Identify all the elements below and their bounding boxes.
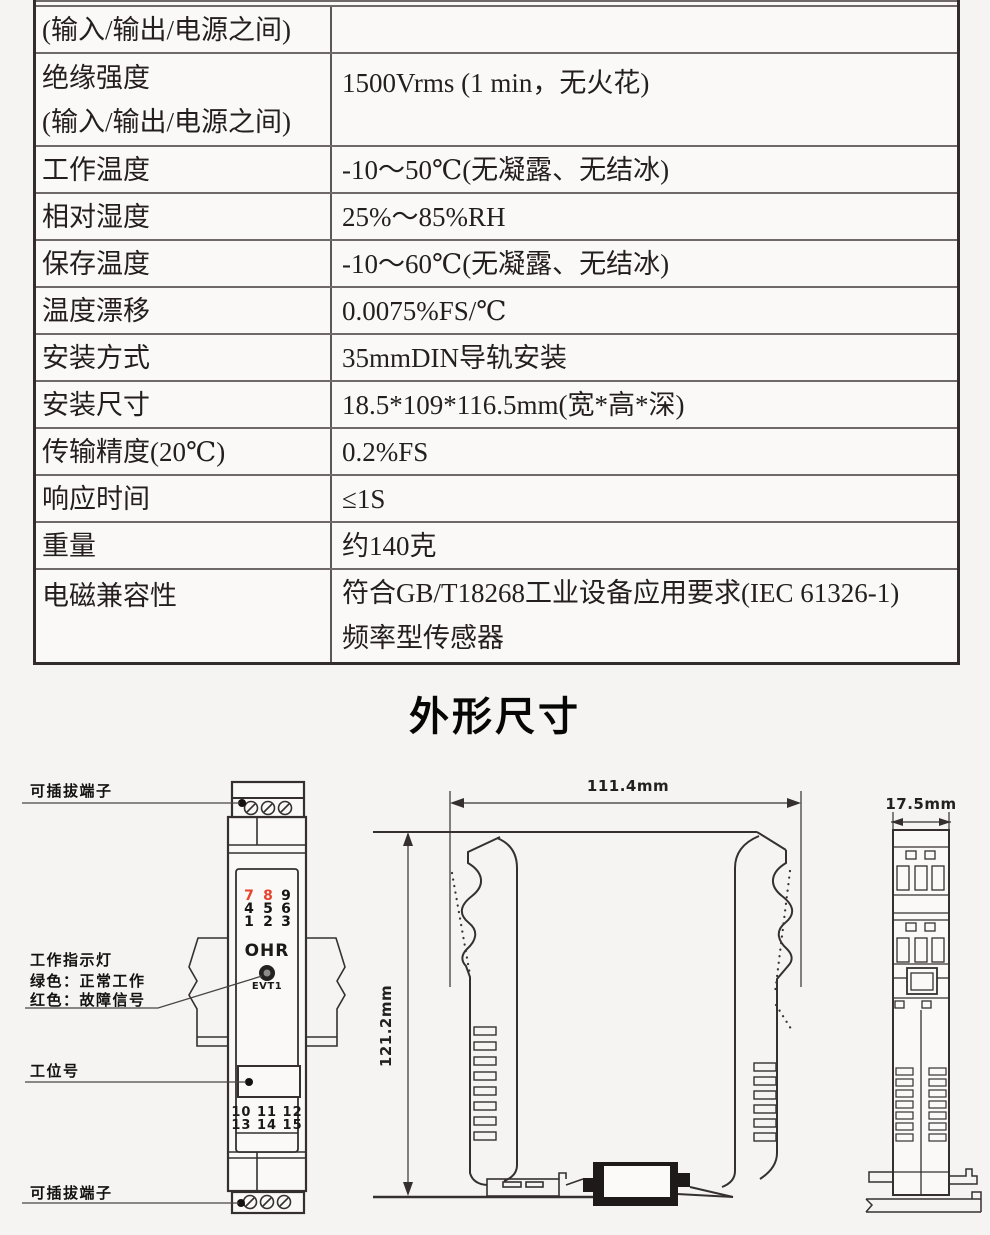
table-row: 传输精度(20℃) 0.2%FS	[36, 427, 957, 474]
spec-value: 约140克	[342, 525, 957, 567]
table-row: 响应时间 ≤1S	[36, 474, 957, 521]
dimension-height-label: 121.2mm	[377, 985, 395, 1067]
bottom-terminal-block	[232, 1192, 304, 1213]
spec-label: 响应时间	[42, 479, 330, 519]
spec-value: ≤1S	[342, 478, 957, 520]
spec-value: 18.5*109*116.5mm(宽*高*深)	[342, 384, 957, 426]
spec-label: 绝缘强度	[42, 56, 330, 100]
terminal-digit: 2	[263, 914, 273, 930]
callout-indicator-title: 工作指示灯	[30, 951, 113, 969]
front-view: 7 8 9 4 5 6 1 2 3 OHR EVT1 10	[22, 782, 345, 1213]
table-row: 绝缘强度 (输入/输出/电源之间) 1500Vrms (1 min，无火花)	[36, 52, 957, 145]
spec-label: (输入/输出/电源之间)	[42, 10, 330, 50]
din-clip	[583, 1162, 690, 1206]
dimension-width: 111.4mm	[450, 777, 801, 987]
callout-station-label: 工位号	[30, 1062, 80, 1080]
table-row: 温度漂移 0.0075%FS/℃	[36, 286, 957, 333]
dimension-width-label: 111.4mm	[587, 777, 669, 795]
table-row: 安装方式 35mmDIN导轨安装	[36, 333, 957, 380]
spec-label: 相对湿度	[42, 197, 330, 237]
spec-label: 温度漂移	[42, 291, 330, 331]
outline-dimension-drawing: 7 8 9 4 5 6 1 2 3 OHR EVT1 10	[0, 765, 990, 1235]
table-row: 电磁兼容性 符合GB/T18268工业设备应用要求(IEC 61326-1) 频…	[36, 568, 957, 662]
mounting-foot	[487, 1173, 583, 1196]
spec-sheet-page: (输入/输出/电源之间) 绝缘强度 (输入/输出/电源之间) 1500Vrms …	[0, 0, 990, 1235]
spec-label: 安装尺寸	[42, 385, 330, 425]
spec-value: 1500Vrms (1 min，无火花)	[342, 62, 957, 104]
spec-value: 25%～85%RH	[342, 196, 957, 238]
spec-label: 安装方式	[42, 338, 330, 378]
station-number-box	[238, 1066, 300, 1097]
table-row: 相对湿度 25%～85%RH	[36, 192, 957, 239]
terminal-numbers-row2: 13 14 15	[231, 1118, 302, 1133]
table-row: (输入/输出/电源之间)	[36, 5, 957, 52]
spec-value: 0.2%FS	[342, 431, 957, 473]
table-row: 安装尺寸 18.5*109*116.5mm(宽*高*深)	[36, 380, 957, 427]
vent-slots-left	[474, 1027, 496, 1140]
led-label: EVT1	[252, 981, 282, 992]
callout-indicator-green: 绿色：正常工作	[30, 972, 146, 990]
spec-value: 0.0075%FS/℃	[342, 290, 957, 332]
status-led	[259, 965, 275, 981]
vent-slots-right	[754, 1063, 776, 1141]
dimension-height: 121.2mm	[377, 832, 413, 1196]
terminal-digit: 1	[244, 914, 254, 930]
spec-label: 电磁兼容性	[42, 576, 330, 616]
callout-terminal-bottom: 可插拔端子	[30, 1184, 113, 1202]
table-row: 保存温度 -10～60℃(无凝露、无结冰)	[36, 239, 957, 286]
spec-value: -10～60℃(无凝露、无结冰)	[342, 243, 957, 285]
dimension-depth: 17.5mm	[885, 795, 956, 829]
spec-label: 重量	[42, 526, 330, 566]
spec-value: -10～50℃(无凝露、无结冰)	[342, 149, 957, 191]
spec-label: 传输精度(20℃)	[42, 432, 330, 472]
spec-value: 符合GB/T18268工业设备应用要求(IEC 61326-1)	[342, 571, 957, 616]
terminal-screws	[244, 1196, 291, 1209]
side-view: 111.4mm 121.2mm	[373, 777, 801, 1206]
terminal-digit: 3	[281, 914, 291, 930]
spec-label: 保存温度	[42, 244, 330, 284]
spec-table: (输入/输出/电源之间) 绝缘强度 (输入/输出/电源之间) 1500Vrms …	[33, 0, 960, 665]
table-row: 工作温度 -10～50℃(无凝露、无结冰)	[36, 145, 957, 192]
enclosure-profile	[373, 832, 792, 1197]
section-heading-outline-dimensions: 外形尺寸	[0, 684, 990, 742]
spec-label-line2: (输入/输出/电源之间)	[42, 100, 330, 144]
hidden-dotted-lines	[452, 871, 793, 1032]
callout-terminal-top: 可插拔端子	[30, 782, 113, 800]
spec-label: 工作温度	[42, 150, 330, 190]
dimension-depth-label: 17.5mm	[885, 795, 956, 813]
terminal-screws	[245, 802, 292, 815]
table-row: 重量 约140克	[36, 521, 957, 568]
leader-dot	[245, 1078, 253, 1086]
brand-logo: OHR	[245, 941, 290, 961]
spec-value-line2: 频率型传感器	[342, 616, 957, 661]
top-terminal-block	[232, 782, 304, 817]
callout-indicator-red: 红色：故障信号	[30, 991, 146, 1009]
terminal-digit-grid: 7 8 9 4 5 6 1 2 3	[244, 888, 291, 930]
end-view: 17.5mm	[866, 795, 981, 1212]
spec-value: 35mmDIN导轨安装	[342, 337, 957, 379]
